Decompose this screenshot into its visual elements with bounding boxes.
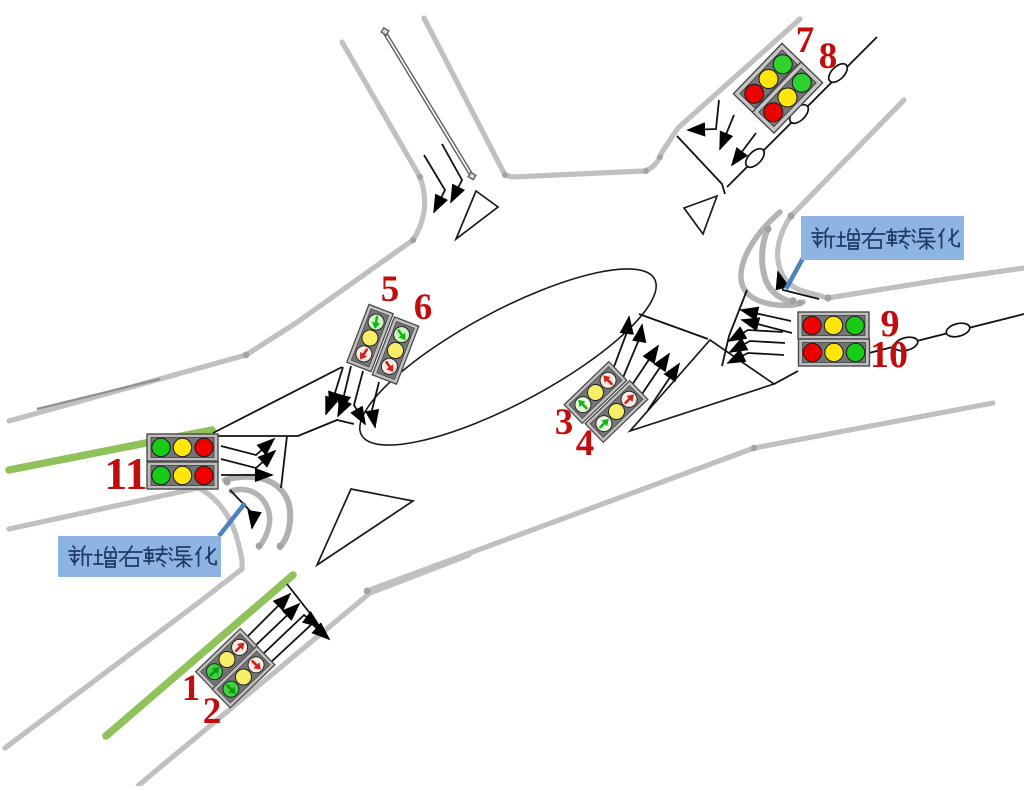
svg-text:2: 2 (203, 691, 222, 732)
svg-text:11: 11 (104, 448, 147, 499)
svg-text:1: 1 (182, 668, 201, 709)
svg-text:10: 10 (870, 334, 908, 376)
svg-text:4: 4 (576, 423, 595, 464)
svg-text:6: 6 (414, 287, 433, 328)
svg-text:7: 7 (796, 20, 815, 61)
svg-text:8: 8 (819, 36, 838, 77)
svg-text:3: 3 (555, 402, 574, 443)
svg-text:5: 5 (381, 269, 400, 310)
